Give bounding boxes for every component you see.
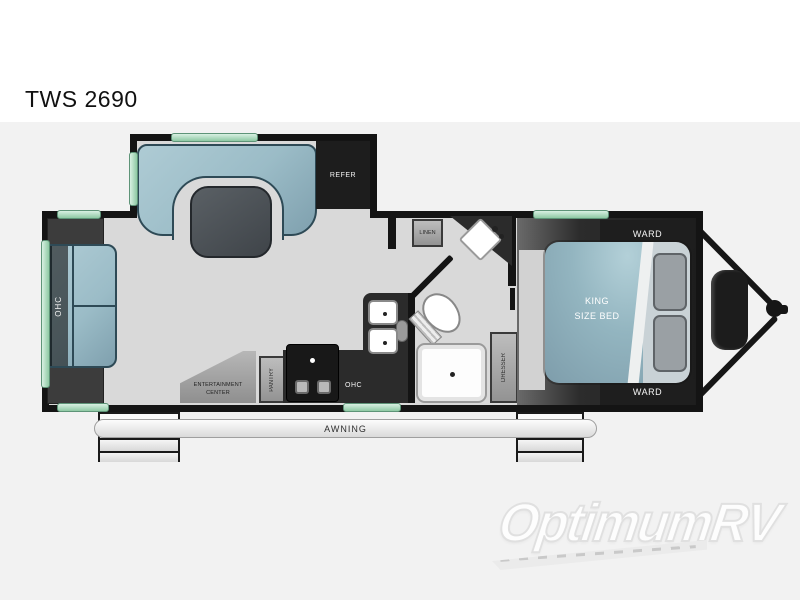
vanity-faucet: [492, 226, 498, 232]
slideout-top-window: [171, 133, 258, 142]
rear-overhead-cabinet: OHC: [49, 246, 68, 366]
awning-label: AWNING: [324, 424, 367, 434]
dresser: DRESSER: [490, 332, 518, 403]
kitchen-sink-basin: [368, 300, 398, 325]
shower: [416, 343, 487, 403]
shower-drain: [450, 372, 455, 377]
step-tread: [100, 451, 178, 462]
rear-cabinet-bottom: [47, 366, 104, 404]
slideout-side-window: [129, 152, 138, 206]
pillow: [653, 253, 687, 311]
bedroom-floor-strip: [519, 250, 545, 390]
step-tread: [100, 438, 178, 451]
galley-wall-stub: [388, 218, 396, 249]
wardrobe-bottom-label: WARD: [633, 387, 662, 397]
awning-bar: AWNING: [94, 419, 597, 438]
kitchen-sink-basin: [368, 328, 398, 354]
floorplan-canvas: TWS 2690 OptimumRV OHC REFER ENTERTAINME…: [0, 0, 800, 600]
page-title: TWS 2690: [25, 86, 138, 113]
linen-closet: LINEN: [412, 219, 443, 247]
hitch-jack: [778, 305, 788, 314]
entertainment-center-label: ENTERTAINMENT CENTER: [180, 381, 256, 398]
refrigerator: REFER: [316, 141, 370, 209]
king-bed: KING SIZE BED: [545, 242, 690, 383]
king-bed-label: KING SIZE BED: [553, 294, 641, 325]
pantry: PANTRY: [259, 356, 285, 403]
stove-burner: [295, 380, 309, 394]
kitchen-ohc-label: OHC: [345, 382, 362, 389]
kitchen-window: [343, 403, 401, 412]
propane-tank: [711, 270, 748, 350]
kitchen-sink-peninsula: [363, 293, 410, 353]
dresser-label: DRESSER: [501, 353, 507, 382]
sink-drain: [383, 312, 387, 316]
refer-label: REFER: [330, 172, 356, 179]
rear-top-window: [57, 210, 101, 219]
watermark-logo: OptimumRV: [495, 492, 783, 554]
vanity-faucet-handle: [499, 234, 504, 239]
rear-wall-window: [41, 240, 50, 388]
sink-drain: [383, 341, 387, 345]
rear-bottom-window: [57, 403, 109, 412]
bedroom-door-jamb: [510, 288, 515, 310]
step-tread: [518, 438, 582, 451]
pantry-label: PANTRY: [269, 368, 275, 392]
pillow: [653, 315, 687, 372]
stove-burner: [317, 380, 331, 394]
rear-ohc-label: OHC: [54, 296, 63, 317]
step-tread: [518, 451, 582, 462]
wardrobe-top-label: WARD: [633, 229, 662, 239]
bedroom-window: [533, 210, 609, 219]
stove-knob: [310, 358, 315, 363]
sofa-cushion-divider: [72, 305, 117, 307]
linen-label: LINEN: [419, 230, 435, 236]
dinette-table: [190, 186, 272, 258]
stove: [286, 344, 339, 402]
